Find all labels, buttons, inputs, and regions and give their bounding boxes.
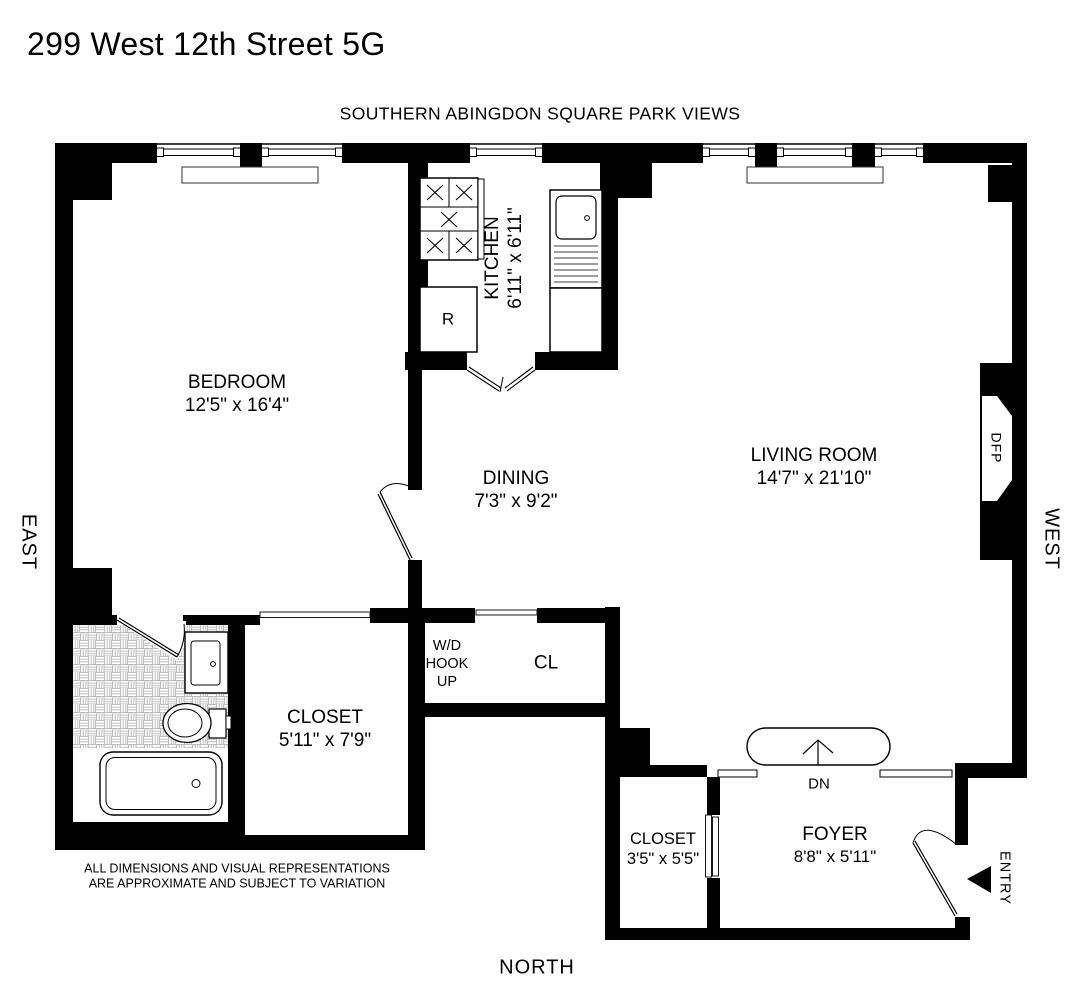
- wd-line: HOOK: [426, 655, 469, 673]
- foyer-closet-label: CLOSET 3'5" x 5'5": [627, 829, 699, 869]
- wd-opening: [476, 610, 537, 615]
- window-symbols: [157, 144, 924, 157]
- room-dims: 14'7" x 21'10": [751, 467, 878, 490]
- bedroom-label: BEDROOM 12'5" x 16'4": [185, 371, 289, 417]
- dn-label: DN: [808, 773, 830, 796]
- toilet: [163, 704, 231, 743]
- stove: [420, 178, 484, 260]
- compass-east: EAST: [17, 514, 40, 570]
- radiator: [747, 167, 883, 183]
- room-name: FOYER: [794, 824, 877, 846]
- wd-hookup-label: W/D HOOK UP: [426, 637, 469, 691]
- walk-in-closet-label: CLOSET 5'11" x 7'9": [279, 706, 371, 752]
- room-dims: 12'5" x 16'4": [185, 394, 289, 417]
- living-room-label: LIVING ROOM 14'7" x 21'10": [751, 444, 878, 490]
- kitchen-double-door: [467, 367, 535, 392]
- room-name: CLOSET: [627, 829, 699, 849]
- compass-west: WEST: [1040, 508, 1063, 570]
- room-dims: 5'11" x 7'9": [279, 729, 371, 752]
- room-name: DINING: [474, 467, 557, 490]
- disclaimer-line: ARE APPROXIMATE AND SUBJECT TO VARIATION: [84, 876, 390, 891]
- room-name: LIVING ROOM: [751, 444, 878, 467]
- radiator: [182, 167, 318, 183]
- bedroom-door: [378, 483, 412, 560]
- dining-label: DINING 7'3" x 9'2": [474, 467, 557, 513]
- room-dims: 6'11" x 6'11": [504, 207, 527, 308]
- room-dims: 3'5" x 5'5": [627, 849, 699, 869]
- stair-rail: [880, 770, 952, 777]
- foyer-closet-slider: [706, 815, 719, 877]
- room-name: CLOSET: [279, 706, 371, 729]
- room-dims: 7'3" x 9'2": [474, 490, 557, 513]
- kitchen-counter: [550, 288, 602, 352]
- foyer-label: FOYER 8'8" x 5'11": [794, 824, 877, 868]
- entry-arrow-icon: [967, 866, 991, 893]
- kitchen-label: KITCHEN 6'11" x 6'11": [481, 207, 527, 308]
- wd-line: W/D: [426, 637, 469, 655]
- room-name: BEDROOM: [185, 371, 289, 394]
- entry-label: ENTRY: [993, 851, 1016, 905]
- entry-door: [913, 830, 957, 916]
- dfp-label: DFP: [985, 433, 1008, 464]
- disclaimer: ALL DIMENSIONS AND VISUAL REPRESENTATION…: [84, 862, 390, 891]
- stair-rail: [718, 770, 757, 777]
- bathroom-sink: [185, 632, 228, 693]
- room-name: KITCHEN: [481, 207, 504, 308]
- stairs-dn: [747, 728, 890, 765]
- refrigerator-label: R: [442, 308, 454, 331]
- cl-label: CL: [534, 652, 558, 675]
- page-title: 299 West 12th Street 5G: [27, 26, 386, 63]
- disclaimer-line: ALL DIMENSIONS AND VISUAL REPRESENTATION…: [84, 862, 390, 877]
- closet-opening: [260, 612, 370, 618]
- wd-line: UP: [426, 673, 469, 691]
- bathtub: [100, 752, 222, 815]
- kitchen-sink: [550, 190, 602, 288]
- subtitle: SOUTHERN ABINGDON SQUARE PARK VIEWS: [340, 103, 741, 126]
- room-dims: 8'8" x 5'11": [794, 846, 877, 868]
- compass-north: NORTH: [499, 957, 575, 980]
- floor-plan: 299 West 12th Street 5G SOUTHERN ABINGDO…: [0, 0, 1081, 1000]
